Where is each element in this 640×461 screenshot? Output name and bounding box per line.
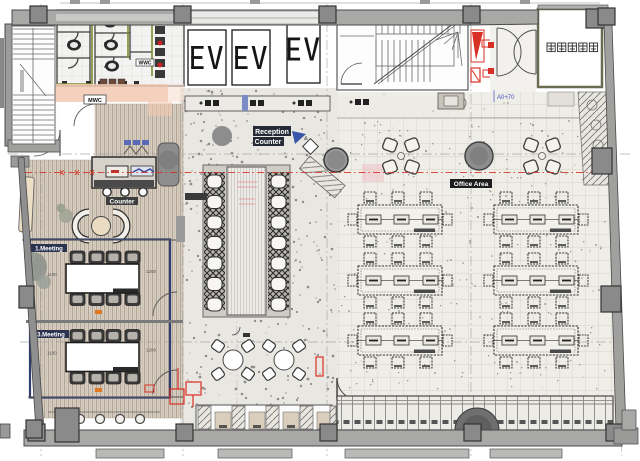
svg-text:3.Meeting: 3.Meeting bbox=[37, 333, 65, 339]
svg-text:1200: 1200 bbox=[146, 348, 157, 353]
svg-text:1200: 1200 bbox=[146, 269, 157, 274]
svg-text:Reception: Reception bbox=[255, 129, 289, 136]
svg-text:1100: 1100 bbox=[47, 351, 57, 356]
svg-text:1100: 1100 bbox=[47, 272, 57, 277]
svg-text:Office Area: Office Area bbox=[454, 181, 489, 188]
svg-text:MWC: MWC bbox=[88, 98, 102, 104]
svg-text:Counter: Counter bbox=[110, 199, 135, 206]
svg-text:A0+70: A0+70 bbox=[497, 95, 515, 101]
svg-text:1.Meeting: 1.Meeting bbox=[35, 247, 63, 253]
svg-text:WWC: WWC bbox=[138, 61, 151, 67]
svg-text:Counter: Counter bbox=[255, 139, 282, 146]
